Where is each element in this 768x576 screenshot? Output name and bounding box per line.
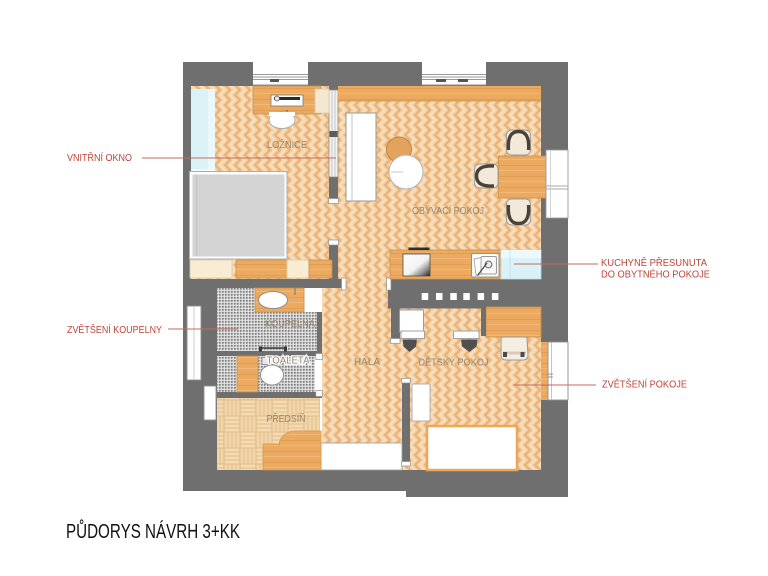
svg-text:DĚTSKÝ POKOJ: DĚTSKÝ POKOJ — [419, 358, 489, 369]
svg-text:PŘEDSÍŇ: PŘEDSÍŇ — [267, 414, 306, 425]
svg-text:KUCHYNĚ PŘESUNUTA: KUCHYNĚ PŘESUNUTA — [601, 256, 707, 269]
svg-text:KOUPELNA: KOUPELNA — [265, 319, 315, 330]
svg-text:DO OBYTNÉHO POKOJE: DO OBYTNÉHO POKOJE — [601, 268, 710, 281]
svg-text:ZVĚTŠENÍ POKOJE: ZVĚTŠENÍ POKOJE — [602, 378, 687, 391]
svg-text:HALA: HALA — [354, 357, 380, 368]
svg-text:ZVĚTŠENÍ KOUPELNY: ZVĚTŠENÍ KOUPELNY — [67, 323, 162, 336]
svg-text:OBÝVACÍ POKOJ: OBÝVACÍ POKOJ — [412, 206, 484, 217]
svg-text:VNITŘNÍ OKNO: VNITŘNÍ OKNO — [67, 151, 132, 164]
svg-text:PŮDORYS NÁVRH 3+KK: PŮDORYS NÁVRH 3+KK — [66, 519, 240, 543]
svg-text:LOŽNICE: LOŽNICE — [267, 140, 307, 151]
svg-text:TOALETA: TOALETA — [267, 356, 310, 367]
